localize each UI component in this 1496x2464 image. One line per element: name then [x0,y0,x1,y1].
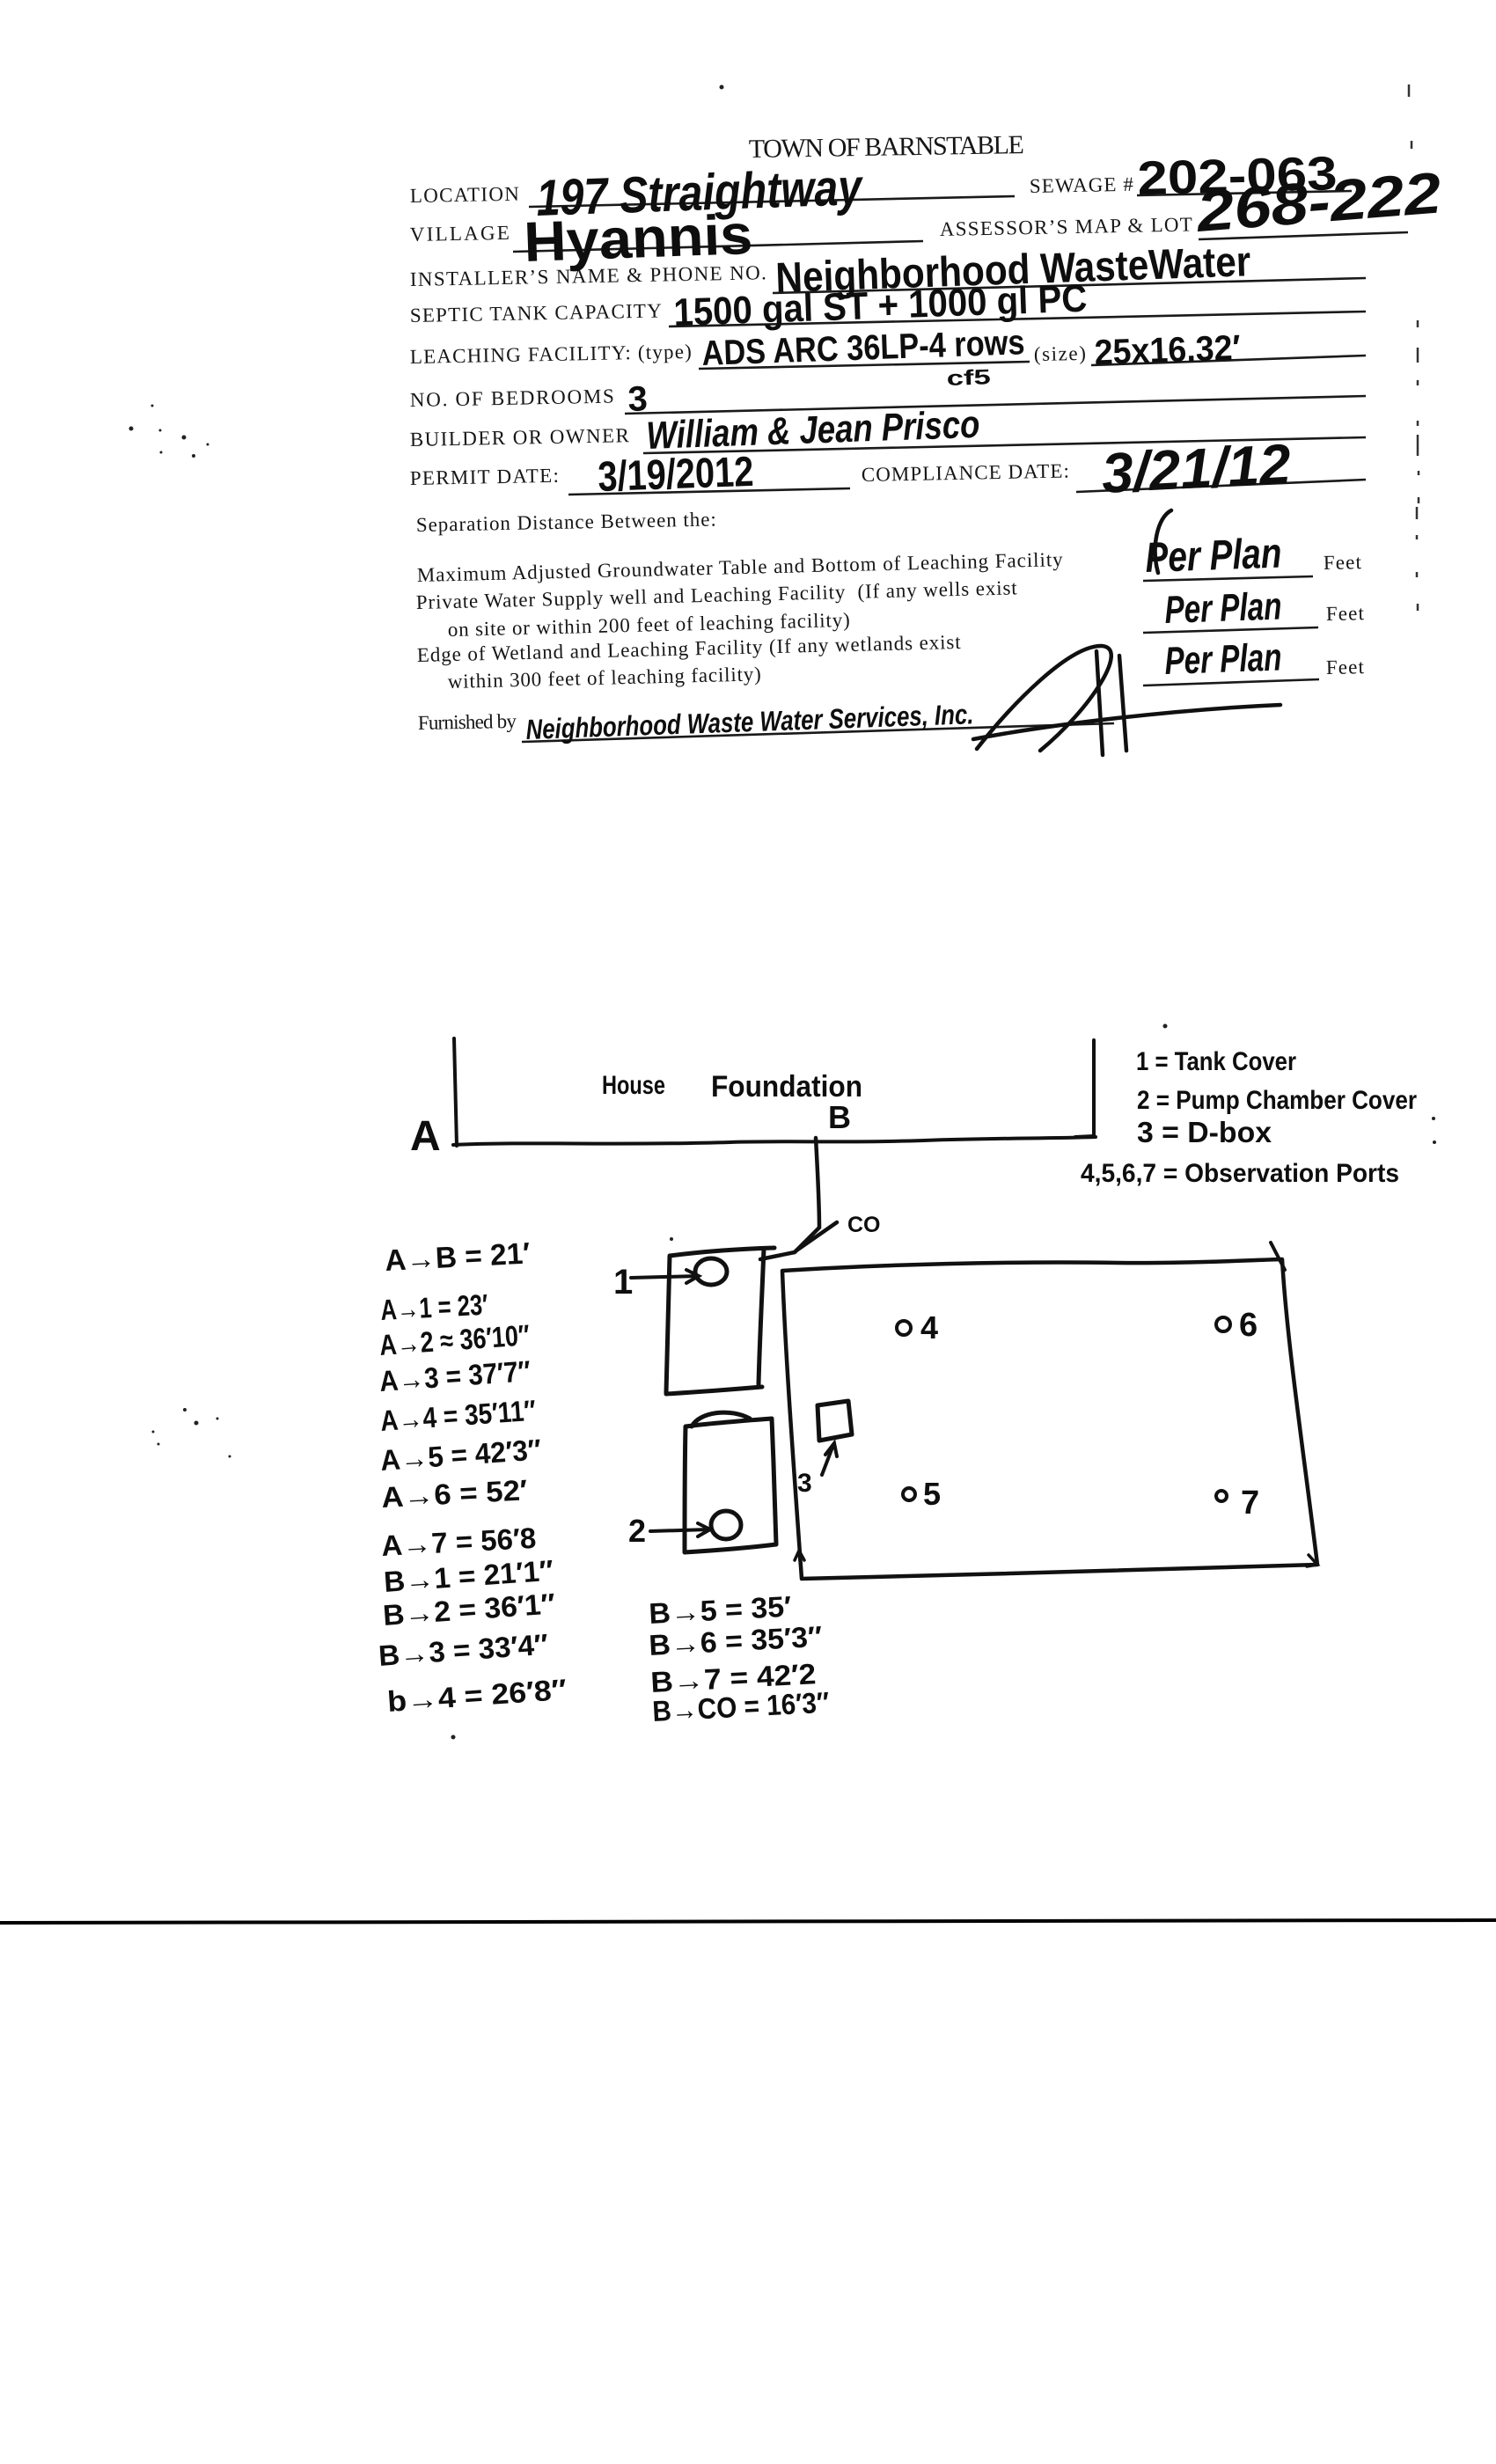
svg-text:House: House [602,1071,665,1100]
svg-text:TOWN OF BARNSTABLE: TOWN OF BARNSTABLE [749,130,1024,164]
svg-text:6: 6 [1239,1307,1258,1344]
svg-text:Hyannis: Hyannis [523,202,753,274]
svg-text:A: A [410,1113,441,1160]
svg-text:3/19/2012: 3/19/2012 [598,449,755,501]
svg-text:3: 3 [797,1469,812,1498]
svg-text:cf5: cf5 [946,365,991,391]
svg-text:4: 4 [920,1309,938,1346]
svg-text:COMPLIANCE DATE:: COMPLIANCE DATE: [862,459,1069,486]
svg-text:CO: CO [847,1213,881,1237]
svg-text:NO. OF BEDROOMS: NO. OF BEDROOMS [410,385,614,411]
svg-text:3: 3 [627,379,649,419]
svg-text:Feet: Feet [1326,656,1365,678]
svg-text:1 = Tank Cover: 1 = Tank Cover [1136,1047,1296,1076]
svg-text:Per Plan: Per Plan [1145,531,1283,582]
svg-text:LOCATION: LOCATION [410,183,520,207]
svg-text:Feet: Feet [1324,551,1362,574]
svg-text:SEWAGE #: SEWAGE # [1030,173,1134,197]
svg-text:4,5,6,7 = Observation Ports: 4,5,6,7 = Observation Ports [1081,1159,1399,1188]
svg-text:1: 1 [613,1263,633,1302]
svg-text:A→1 = 23′: A→1 = 23′ [379,1288,488,1326]
svg-text:3/21/12: 3/21/12 [1100,432,1292,505]
svg-text:25x16.32′: 25x16.32′ [1094,328,1241,372]
svg-text:5: 5 [923,1476,941,1512]
svg-text:PERMIT DATE:: PERMIT DATE: [410,465,559,489]
svg-text:7: 7 [1241,1485,1259,1522]
svg-text:Feet: Feet [1326,602,1365,625]
svg-text:2 = Pump Chamber Cover: 2 = Pump Chamber Cover [1137,1086,1417,1115]
svg-text:3 = D-box: 3 = D-box [1137,1116,1272,1148]
svg-text:BUILDER OR OWNER: BUILDER OR OWNER [410,424,630,451]
svg-text:Furnished by: Furnished by [418,710,517,734]
svg-text:Per Plan: Per Plan [1164,635,1283,683]
svg-text:2: 2 [628,1513,646,1549]
svg-text:Per Plan: Per Plan [1164,584,1283,632]
svg-text:B: B [828,1099,851,1135]
